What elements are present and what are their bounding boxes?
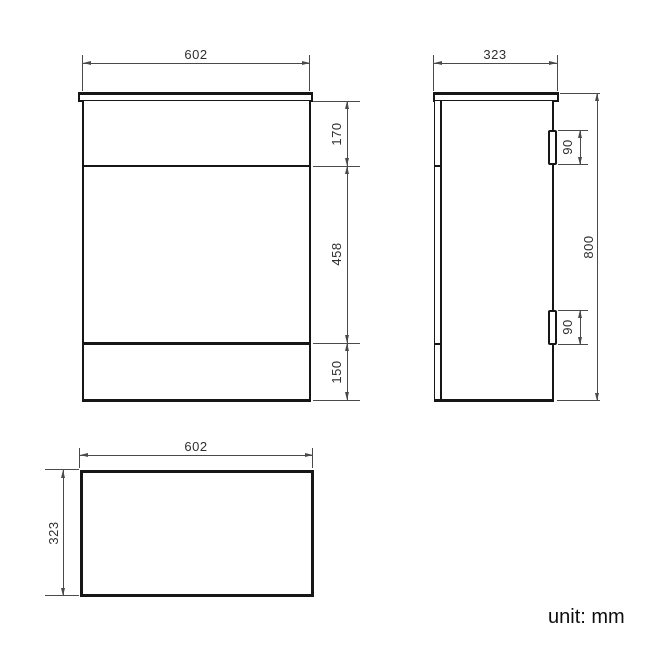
side-panel-joint-upper: [434, 165, 442, 167]
plan-depth-arrow-bottom: [61, 588, 65, 596]
front-arrow-s3-top: [345, 343, 349, 351]
side-height-extension-top: [560, 93, 600, 94]
side-front-panel-line: [440, 101, 442, 401]
side-height-dimension-line: [597, 93, 598, 401]
technical-drawing-canvas: 602 170 458 150 323: [0, 0, 650, 650]
hinge-top-label: 90: [561, 127, 575, 167]
side-panel-joint-lower: [434, 343, 442, 345]
front-width-arrow-left: [83, 61, 91, 65]
plan-depth-dimension-line: [63, 470, 64, 596]
plan-outline: [80, 470, 314, 597]
front-section-tick-mid2: [313, 343, 360, 344]
side-height-arrow-top: [595, 93, 599, 101]
front-middle-section-label: 458: [330, 234, 344, 274]
front-arrow-s3-bot: [345, 392, 349, 400]
hinge-bottom-arrow-up: [578, 310, 582, 318]
front-arrow-s1-bot: [345, 158, 349, 166]
front-section-tick-top: [313, 101, 360, 102]
hinge-bottom-arrow-down: [578, 337, 582, 345]
hinge-bottom-label: 90: [561, 307, 575, 347]
plan-width-arrow-right: [305, 453, 313, 457]
front-section-tick-mid1: [313, 166, 360, 167]
side-depth-label: 323: [475, 48, 515, 62]
plan-depth-label: 323: [47, 513, 61, 553]
front-cabinet-outline: [82, 101, 311, 402]
front-divider-upper: [83, 165, 310, 167]
side-depth-dimension-line: [434, 63, 558, 64]
front-arrow-s2-bot: [345, 335, 349, 343]
front-top-section-label: 170: [330, 114, 344, 154]
plan-depth-arrow-top: [61, 470, 65, 478]
side-depth-arrow-right: [549, 61, 557, 65]
front-width-label: 602: [176, 48, 216, 62]
unit-note: unit: mm: [548, 606, 625, 629]
side-cabinet-outline: [434, 101, 554, 402]
side-depth-arrow-left: [434, 61, 442, 65]
front-width-arrow-right: [302, 61, 310, 65]
plan-width-extension-left: [79, 448, 80, 468]
front-divider-lower: [83, 342, 310, 345]
side-hinge-top: [548, 130, 557, 165]
plan-width-extension-right: [312, 448, 313, 468]
side-hinge-bottom: [548, 310, 557, 345]
side-depth-extension-right: [557, 55, 558, 91]
side-height-extension-bottom: [557, 400, 600, 401]
front-sections-dimension-line: [347, 101, 348, 401]
front-arrow-s2-top: [345, 166, 349, 174]
plan-width-dimension-line: [80, 455, 313, 456]
hinge-top-arrow-up: [578, 130, 582, 138]
hinge-top-arrow-down: [578, 157, 582, 165]
side-height-arrow-bottom: [595, 393, 599, 401]
front-arrow-s1-top: [345, 101, 349, 109]
front-width-dimension-line: [83, 63, 310, 64]
front-section-tick-bottom: [313, 400, 360, 401]
front-bottom-section-label: 150: [330, 352, 344, 392]
plan-width-label: 602: [176, 440, 216, 454]
plan-width-arrow-left: [80, 453, 88, 457]
side-height-label: 800: [582, 227, 596, 267]
